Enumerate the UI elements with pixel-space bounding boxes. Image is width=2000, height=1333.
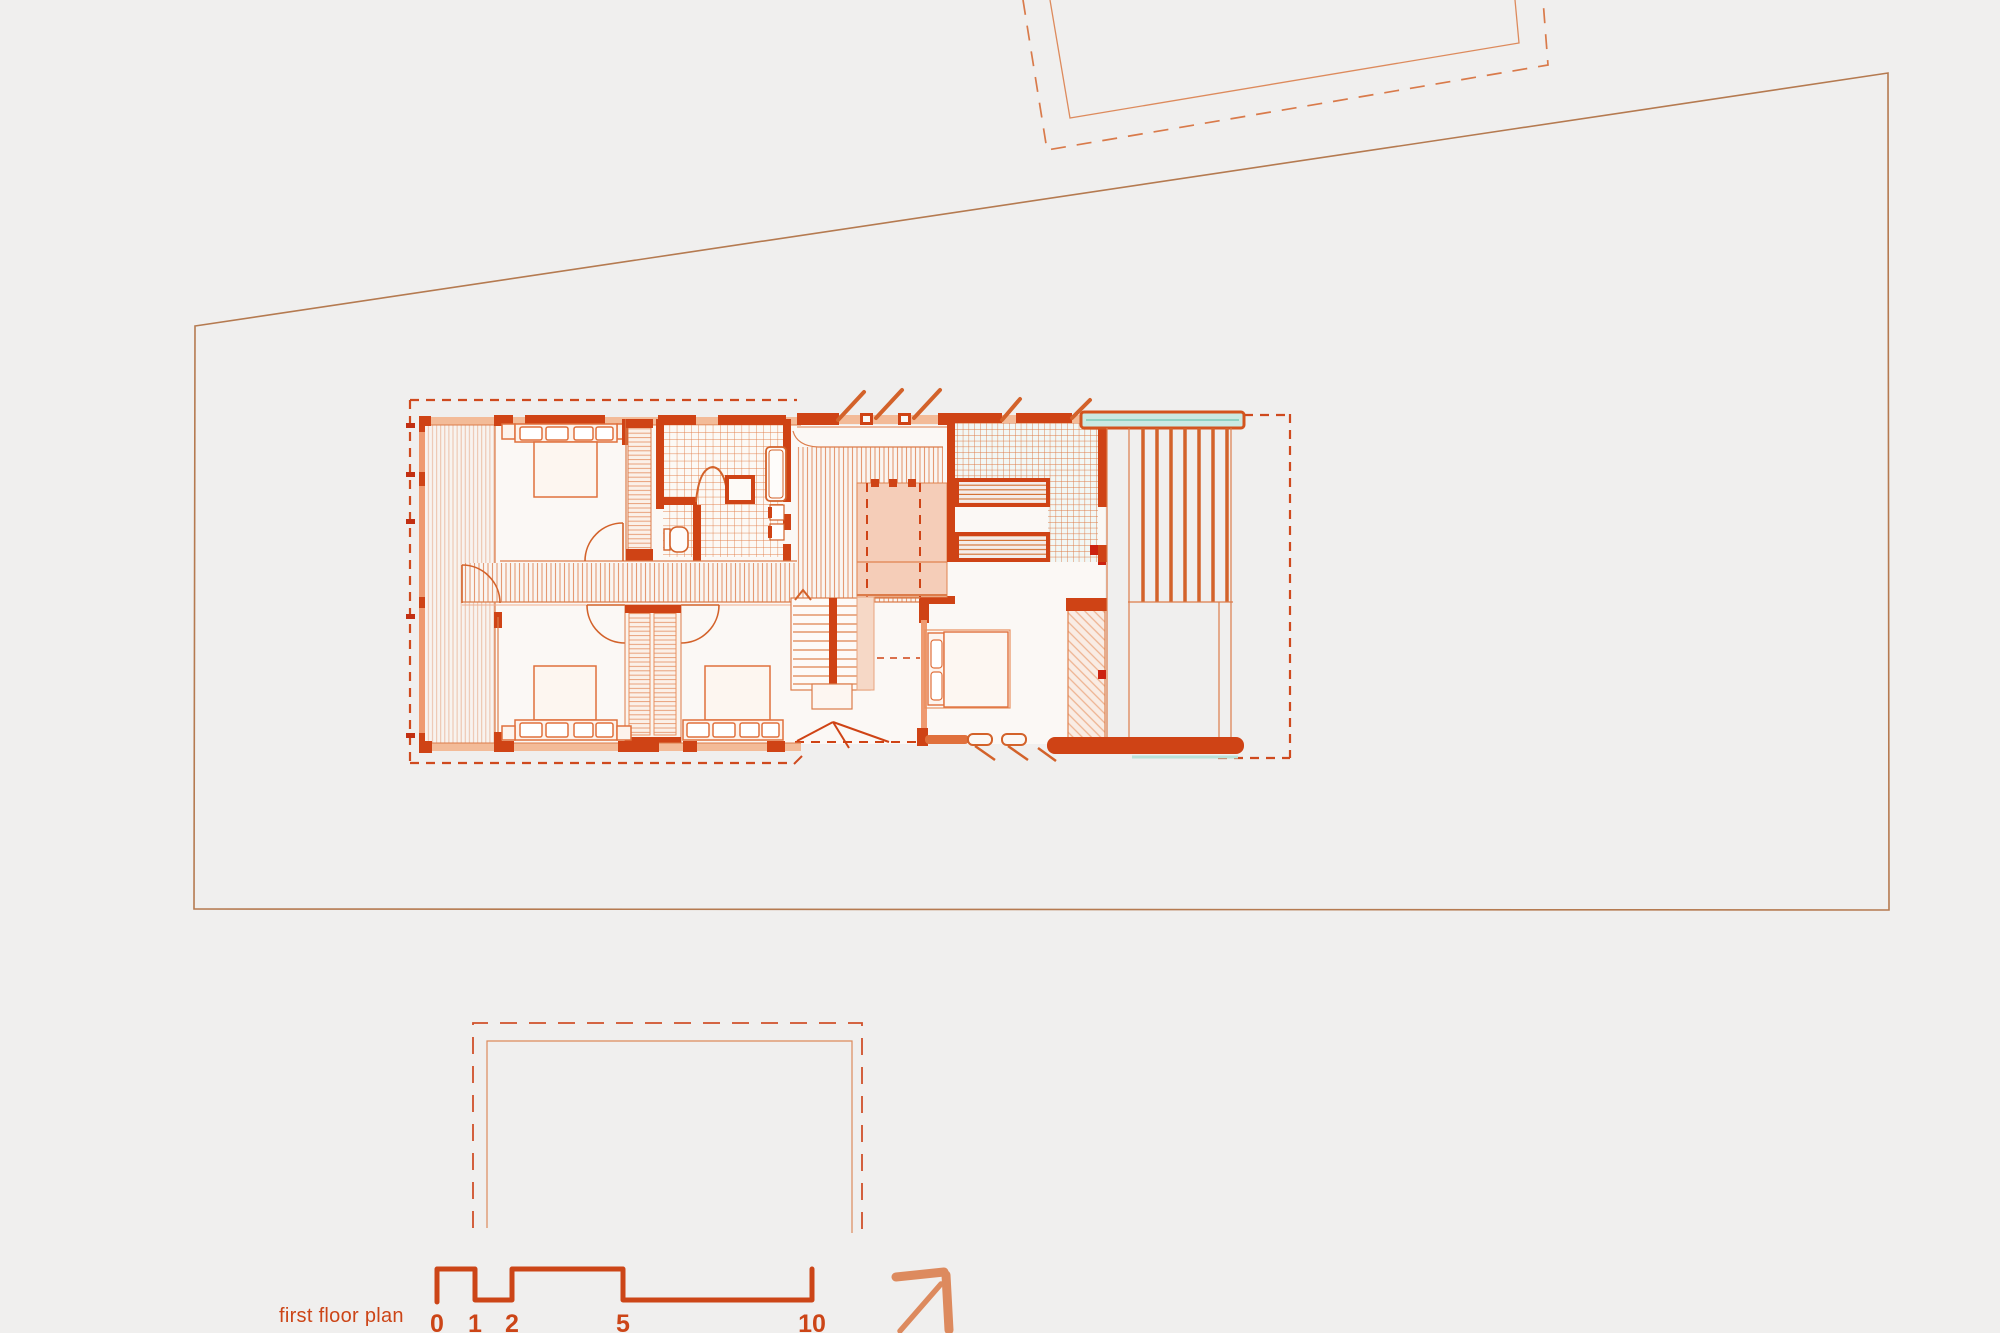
scale-bar: 0 1 2 5 10 (430, 1269, 826, 1333)
bottom-wall-left (419, 741, 801, 753)
scale-label-10: 10 (798, 1310, 826, 1333)
drawing-title: first floor plan (279, 1305, 404, 1327)
kitchen-counters (947, 423, 1107, 562)
scale-label-2: 2 (505, 1310, 519, 1333)
floor-plan-drawing: 0 1 2 5 10 first floor plan (0, 0, 2000, 1333)
scale-label-0: 0 (430, 1310, 444, 1333)
bathtub-icon (766, 447, 786, 501)
wardrobe-unit (625, 605, 681, 744)
scale-label-1: 1 (468, 1310, 482, 1333)
washbasin-icon (727, 477, 753, 502)
scale-bar-line (437, 1269, 812, 1302)
toilet-icon (664, 527, 688, 552)
stair-landing (812, 684, 852, 709)
boundary-end-tick (794, 756, 802, 764)
tiled-area (955, 423, 1098, 480)
north-arrow-icon (896, 1272, 949, 1331)
top-wall-right (797, 390, 1105, 427)
linen-closet (626, 419, 653, 561)
pool-outline (473, 1023, 862, 1233)
bathroom (656, 419, 791, 561)
floor-plan-sheet: 0 1 2 5 10 first floor plan (0, 0, 2000, 1333)
adjacent-building-outline (1023, 0, 1548, 150)
bed-icon (925, 630, 1010, 708)
scale-label-5: 5 (616, 1310, 630, 1333)
